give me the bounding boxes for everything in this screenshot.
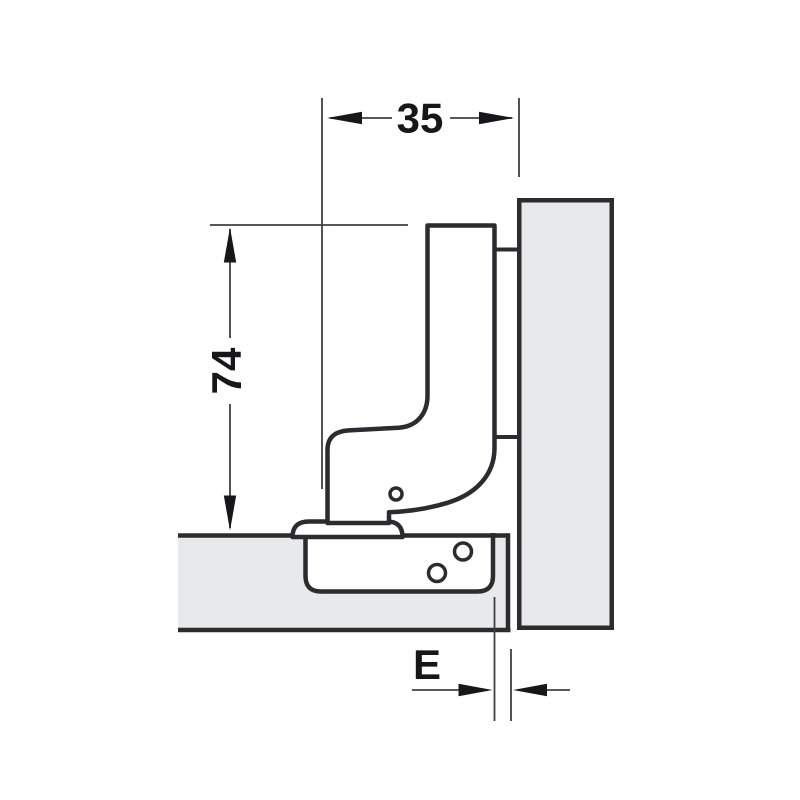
arrowhead-up-icon: [224, 228, 236, 263]
dimension-height-label: 74: [203, 347, 250, 394]
hinge: [293, 226, 520, 582]
hinge-arm: [328, 226, 495, 524]
cup-screw-hole-upper: [455, 543, 472, 560]
hinge-technical-drawing: 35 74 E: [0, 0, 800, 800]
arrowhead-left-icon: [513, 684, 547, 696]
arrowhead-right-icon: [479, 112, 514, 124]
arm-pivot-hole: [390, 488, 402, 500]
arrowhead-down-icon: [224, 496, 236, 531]
arrowhead-left-icon: [327, 112, 362, 124]
arrowhead-right-icon: [459, 684, 493, 696]
cabinet-side-panel: [519, 200, 612, 628]
drawing-canvas: 35 74 E: [0, 0, 800, 800]
cup-screw-hole-lower: [429, 565, 446, 582]
dimension-width-label: 35: [397, 95, 444, 142]
dimension-edge-label: E: [413, 641, 441, 688]
